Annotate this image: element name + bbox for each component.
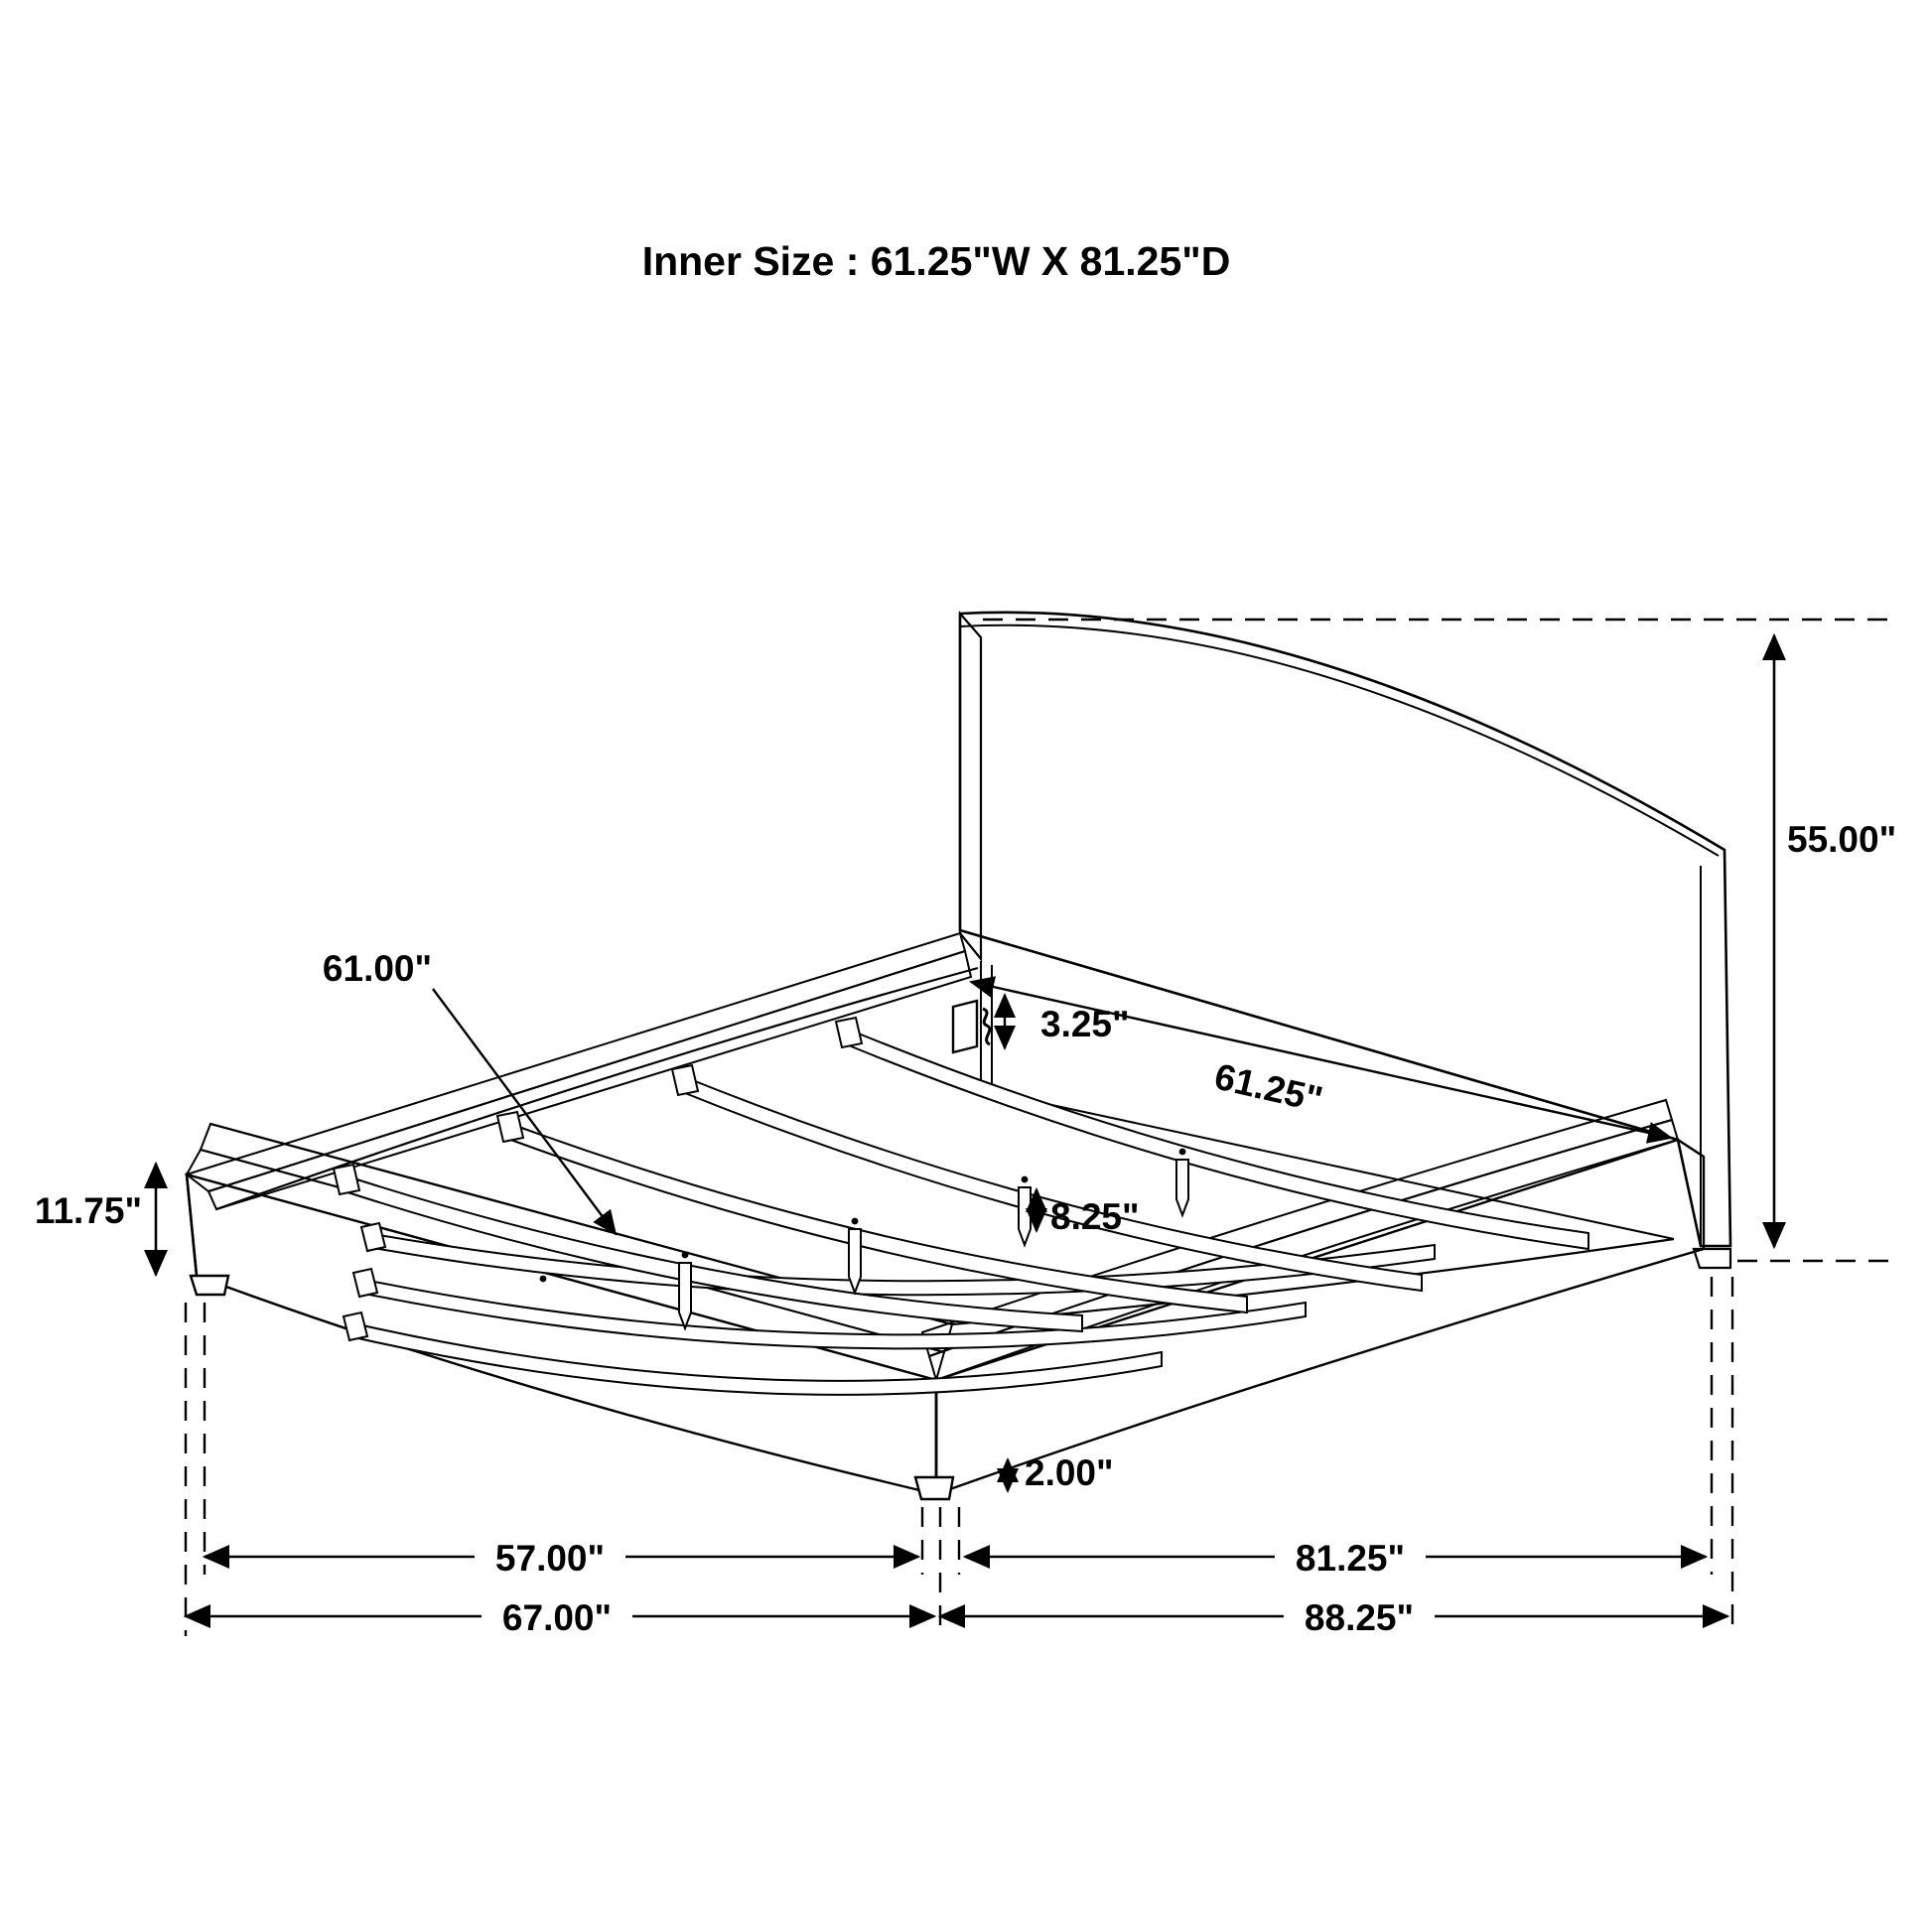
dim-overall-width: 67.00" [186,1592,934,1638]
diagram-canvas: 61.00" 3.25" 61.25" 55.00" 11.75" 8.25" [0,0,1932,1932]
dim-label-bracket-drop: 3.25" [1040,1004,1130,1044]
dim-label-headboard-height: 55.00" [1787,819,1896,860]
dim-label-overall-width: 67.00" [502,1597,612,1638]
center-leg [849,1229,861,1293]
bed-dimension-diagram: 61.00" 3.25" 61.25" 55.00" 11.75" 8.25" [0,0,1932,1932]
dim-center-leg: 8.25" [1036,1189,1140,1237]
dim-label-foot-leg: 2.00" [1025,1452,1114,1493]
dim-label-center-leg: 8.25" [1050,1196,1140,1237]
center-leg [679,1263,691,1328]
bed-frame-drawing [187,613,1730,1499]
center-leg [1176,1160,1188,1215]
dim-label-slat-length: 61.00" [323,948,432,989]
dim-inner-frame-width: 57.00" [205,1533,918,1579]
center-leg [1019,1187,1031,1245]
dim-label-base-height: 11.75" [35,1190,142,1231]
left-leg [191,1276,228,1295]
dim-overall-depth: 88.25" [940,1592,1727,1638]
page-title: Inner Size : 61.25"W X 81.25"D [642,238,1231,284]
dim-label-inner-frame-width: 57.00" [495,1538,605,1579]
dim-base-height: 11.75" [35,1164,156,1275]
dim-label-overall-depth: 88.25" [1305,1597,1414,1638]
bed-silhouette [187,613,1730,1496]
dim-label-inner-frame-depth: 81.25" [1296,1538,1405,1579]
dim-inner-frame-depth: 81.25" [965,1533,1706,1579]
dim-headboard-height: 55.00" [1774,635,1896,1247]
front-leg [915,1477,953,1499]
